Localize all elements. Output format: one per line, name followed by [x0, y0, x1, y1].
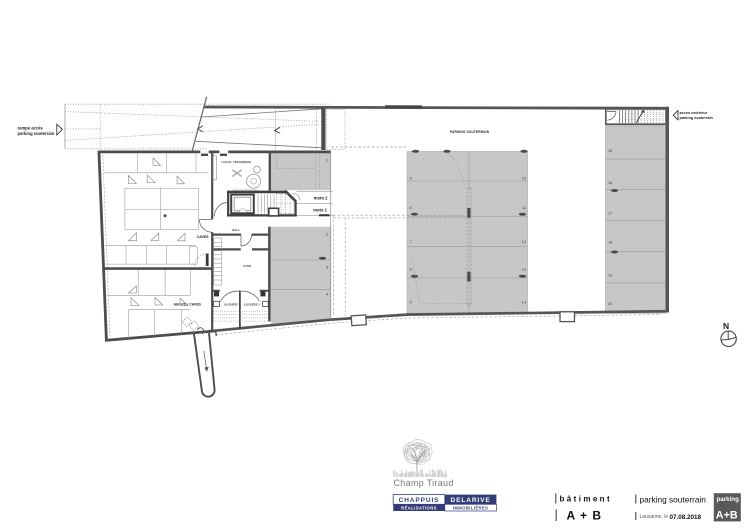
svg-text:A+B: A+B [716, 509, 738, 521]
svg-text:parking souterrain: parking souterrain [680, 116, 714, 120]
svg-text:9: 9 [410, 300, 412, 305]
svg-text:16: 16 [608, 180, 612, 185]
svg-text:15: 15 [608, 148, 612, 153]
svg-text:parking souterrain: parking souterrain [18, 131, 55, 136]
svg-text:17: 17 [608, 211, 612, 216]
svg-text:moto 1: moto 1 [313, 208, 327, 213]
svg-text:PARKING SOUTERRAIN: PARKING SOUTERRAIN [450, 130, 490, 134]
svg-text:CAVE: CAVE [243, 264, 251, 268]
svg-text:3: 3 [326, 264, 328, 269]
svg-text:N: N [723, 321, 729, 331]
svg-text:RÉALISATIONS: RÉALISATIONS [401, 506, 437, 511]
svg-text:bâtiment: bâtiment [560, 495, 613, 504]
svg-text:IMMOBILIÈRES: IMMOBILIÈRES [453, 506, 489, 511]
svg-text:5: 5 [410, 176, 412, 181]
svg-text:CHAPPUIS: CHAPPUIS [399, 497, 440, 504]
svg-text:accès extérieur: accès extérieur [680, 111, 708, 115]
svg-text:A + B: A + B [567, 508, 603, 522]
svg-text:7: 7 [410, 239, 412, 244]
svg-text:moto 2: moto 2 [314, 196, 328, 201]
svg-text:2: 2 [326, 231, 328, 236]
svg-text:Lausanne, le: Lausanne, le [640, 514, 669, 520]
svg-text:parking: parking [717, 496, 740, 503]
svg-text:CAVES: CAVES [197, 235, 209, 239]
svg-text:Champ Tiraud: Champ Tiraud [394, 478, 454, 488]
svg-text:07.08.2018: 07.08.2018 [670, 514, 702, 521]
svg-text:11: 11 [522, 205, 526, 210]
svg-text:parking souterrain: parking souterrain [640, 494, 707, 504]
svg-text:Abri PC / CAVES: Abri PC / CAVES [173, 302, 201, 306]
svg-text:rampe accès: rampe accès [18, 126, 44, 131]
svg-text:12: 12 [522, 239, 526, 244]
svg-text:19: 19 [608, 273, 612, 278]
svg-text:LOCAL TECHNIQUE: LOCAL TECHNIQUE [222, 160, 252, 164]
svg-text:DELARIVE: DELARIVE [451, 497, 491, 504]
svg-text:13: 13 [522, 266, 526, 271]
svg-text:1: 1 [326, 158, 328, 163]
svg-text:18: 18 [608, 240, 612, 245]
svg-text:HALL: HALL [232, 228, 240, 232]
svg-text:6: 6 [410, 205, 412, 210]
svg-text:8: 8 [410, 266, 412, 271]
